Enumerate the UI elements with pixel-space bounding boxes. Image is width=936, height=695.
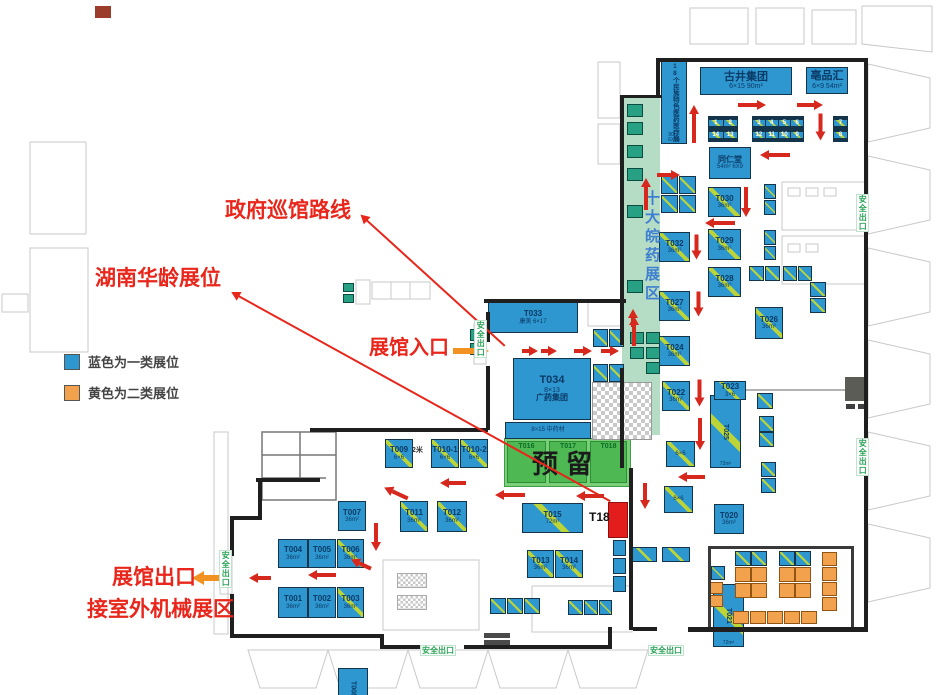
booth-T014: T01436m² [555,550,583,578]
arrow-shaft [744,187,748,208]
booth-size: 36m² [286,604,300,610]
legend-yellow-label: 黄色为二类展位 [88,383,179,402]
booth-T011: T01136m² [400,501,428,532]
booth-T010-1: T010-16×6 [431,439,459,468]
booth-id: 同仁堂 [718,156,742,164]
hualing-annotation: 湖南华龄展位 [95,262,221,292]
booth [662,547,690,562]
booth [761,462,776,477]
booth-id: T028 [715,275,733,283]
booth [613,540,626,556]
booth [343,283,354,292]
booth-size: 36m² [668,307,682,313]
booth-id: 亳品汇 [811,71,844,83]
booth-id: T006 [341,546,359,554]
booth-T010-2: T010-26×6 [460,439,488,468]
booth [764,246,776,260]
booth-size: 6×6 [469,455,479,461]
booth [632,547,657,562]
booth [627,104,643,117]
booth [679,195,696,213]
booth-id: T023 [721,383,739,391]
booth-T034: T0348×13广药集团 [513,358,591,420]
wall [633,627,657,631]
booth [568,600,583,615]
booth [764,230,776,245]
booth-id: T026 [760,316,778,324]
booth-size: 36m² [286,555,300,561]
booth-cell: 13 [724,132,738,138]
booth [646,362,660,374]
booth [810,298,826,313]
booth [661,195,678,213]
booth [507,598,523,614]
booth [490,598,506,614]
booth-id: T001 [284,595,302,603]
arrow-shaft [769,153,790,157]
outdoor-annotation: 接室外机械展区 [87,593,234,623]
route-arrow [601,344,619,358]
booth-T029: T02936m² [708,229,741,260]
route-arrow [678,470,705,484]
booth-T028: T02836m² [708,267,741,297]
arrow-shaft [522,349,529,353]
exhibition-floor-plan: 十大皖药展区 预留 蓝色为一类展位 黄色为二类展位 政府巡馆路线 湖南华龄展位 … [0,0,936,695]
arrow-shaft [657,173,671,177]
safety-exit-label: 安全出口 [219,550,232,588]
booth-cell: 6 [791,120,803,126]
category2-room-outline [708,546,854,632]
booth-T030: T03036m² [708,187,741,217]
booth-id: T009 [390,446,408,454]
booth-cell: 1 [709,120,723,126]
booth [749,266,764,281]
exit-annotation: 展馆出口 [112,561,196,591]
wall [656,58,866,62]
booth-size: 36m² [718,283,732,289]
booth-size: 36m² [668,352,682,358]
route-arrow [541,344,557,358]
booth [343,294,354,303]
booth-size: 36m² [718,203,732,209]
booth: 34561211109 [752,116,804,142]
arrow-shaft [317,573,336,577]
arrow-shaft [601,349,610,353]
booth-T023: T0233×6 [714,381,746,400]
wall [464,645,610,649]
booth [627,122,643,135]
route-arrow [369,523,383,551]
booth-id: T024 [665,344,683,352]
booth-company: 广药集团 [536,394,568,402]
route-arrow [576,489,604,503]
route-annotation: 政府巡馆路线 [225,194,351,224]
booth-size: 36m² [562,565,576,571]
route-arrow [687,105,701,143]
arrow-shaft [818,114,822,132]
booth-size: 8×15 中药材 [531,427,564,433]
route-arrow [739,187,753,217]
wall [310,428,488,432]
arrow-shaft [632,325,636,346]
booth [613,576,626,592]
aisle-width-note: 2米 [412,445,423,455]
booth [584,600,598,615]
booth [761,478,776,493]
hatched-desk [397,595,427,610]
booth [757,393,773,409]
route-arrow [813,114,827,141]
booth-cell: 11 [766,132,778,138]
booth-id: T007 [343,509,361,517]
booth-id: T022 [667,389,685,397]
route-arrow [308,568,336,582]
route-arrow [639,178,653,210]
booth-id: T010-2 [461,446,486,454]
booth-size: 72m² [546,519,560,525]
booth-size: 36m² [762,324,776,330]
booth-18个民族特色医药医疗展: 18个民族特色医药医疗展90m² 6X15 [661,61,687,144]
booth-id: T013 [531,557,549,565]
booth-cell: 5 [779,120,791,126]
booth-T008: T00836m² [338,668,368,695]
booth-id: T010-1 [432,446,457,454]
arrow-shaft [585,494,604,498]
booth-T002: T00236m² [308,587,336,618]
booth-id: T029 [715,237,733,245]
booth-size: 3×6 [725,392,735,398]
booth [798,266,812,281]
arrow-shaft [258,576,271,580]
legend: 蓝色为一类展位 黄色为二类展位 [64,352,179,414]
arrow-shaft [631,318,635,327]
arrow-shaft [541,349,548,353]
booth-T022: T02236m² [662,381,690,411]
booth [810,282,826,297]
booth-T012: T01236m² [437,501,467,532]
booth-id: T002 [313,595,331,603]
booth [759,416,774,432]
booth-cell: 9 [791,132,803,138]
booth-id: T005 [313,546,331,554]
structure-block [95,6,111,18]
booth [764,200,776,215]
booth-id: T18 [589,511,610,524]
booth-id: 古井集团 [724,72,768,84]
booth-T027: T02736m² [659,291,690,321]
arrow-shaft [358,561,371,570]
booth-T007: T00736m² [338,501,366,531]
booth: 121413 [708,116,738,142]
yellow-legend-swatch [64,385,80,401]
booth-cell: 2 [724,120,738,126]
arrow-shaft [697,380,701,398]
booth-size: 36m² [345,517,359,523]
booth-id: T025 [722,424,729,440]
booth-古井集团: 古井集团6×15 90m² [700,67,792,95]
booth-id: T020 [720,512,738,520]
route-arrow [657,168,680,182]
arrow-shaft [738,103,757,107]
booth [679,176,696,194]
legend-row-blue: 蓝色为一类展位 [64,352,179,371]
booth-T001: T00136m² [278,587,308,618]
arrow-shaft [698,418,702,441]
booth-size: 6×15 90m² [729,83,763,90]
booth-id: T033 [524,310,542,318]
booth-size: 6×6 [675,451,685,457]
booth-id: T012 [443,509,461,517]
booth-size: 54m² 6X9 [717,164,743,170]
booth-size: 36m² [315,604,329,610]
booth-size: 36m² [315,555,329,561]
booth: 78 [833,116,848,142]
booth-size: 36m² [534,565,548,571]
booth-cell: 4 [766,120,778,126]
arrow-shaft [694,235,698,251]
route-arrow [692,380,706,407]
booth-T033: T033康美 6×17 [488,302,578,333]
structure-block [846,404,855,409]
booth [764,184,776,199]
wall [656,58,660,98]
wall [486,366,490,430]
booth-id: T008 [349,681,356,695]
booth-T020: T02036m² [714,504,744,534]
booth-id: T003 [341,595,359,603]
booth-cell: 8 [834,132,847,138]
arrow-shaft [574,349,583,353]
route-arrow [691,292,705,317]
wall [230,634,384,638]
route-arrow [495,488,525,502]
booth-T004: T00436m² [278,539,308,568]
arrow-shaft [449,481,466,485]
arrow-shaft [643,483,647,500]
route-arrow [440,476,466,490]
arrow-shaft [692,114,696,143]
booth-id: T034 [539,375,564,387]
booth-T18: T18 [608,502,628,538]
booth-size: 36m² [669,397,683,403]
route-arrow [797,98,823,112]
booth-id: T027 [665,299,683,307]
booth-size: 72m² [714,641,743,646]
arrow-shaft [714,221,735,225]
booth: 6×6 [664,486,693,513]
route-arrow [689,235,703,260]
booth-size: 6×6 [440,455,450,461]
arrow-shaft [687,475,705,479]
route-arrow [249,571,271,585]
booth-size: 6×6 [673,496,683,502]
arrow-shaft [644,187,648,210]
booth: 6×6 [666,441,695,467]
route-arrow [638,483,652,509]
booth-size: 36m² [668,248,682,254]
booth [593,364,608,382]
booth-id: T014 [560,557,578,565]
blue-legend-swatch [64,354,80,370]
reserved-label: 预留 [506,444,626,480]
booth-size: 36m² [718,246,732,252]
booth-size: 6×9 54m² [812,83,842,90]
booth [783,266,797,281]
booth-size: 36m² [722,520,736,526]
wall [258,478,262,520]
legend-blue-label: 蓝色为一类展位 [88,352,179,371]
arrow-shaft [374,523,378,542]
safety-exit-label: 安全出口 [856,438,869,476]
booth-T015: T01572m² [522,503,583,533]
wall [864,58,868,630]
booth-size: 6×6 [394,455,404,461]
wall [620,95,624,345]
booth-cell: 12 [753,132,765,138]
booth-size: 36m² [344,604,358,610]
booth-T013: T01336m² [527,550,554,578]
booth-T003: T00336m² [337,587,364,618]
wall [256,478,320,482]
booth-T009: T0096×6 [385,439,413,468]
arrow-shaft [696,292,700,308]
route-arrow [760,148,790,162]
booth [613,558,626,574]
booth-T005: T00536m² [308,539,336,568]
arrow-shaft [504,493,525,497]
booth-size: 36m² [407,518,421,524]
route-arrow [626,309,640,327]
booth-T024: T02436m² [659,336,690,366]
hatched-desk [397,573,427,588]
route-arrow [693,418,707,450]
booth-T032: T03236m² [659,232,690,262]
booth [599,600,612,615]
safety-exit-label: 安全出口 [474,320,487,358]
booth-id: T004 [284,546,302,554]
booth-size: 36m² [445,518,459,524]
booth-id: T015 [543,511,561,519]
booth-cell: 3 [753,120,765,126]
safety-exit-label: 安全出口 [420,645,456,656]
booth-size: 90m² 6X15 [662,133,686,144]
booth-亳品汇: 亳品汇6×9 54m² [806,67,848,94]
structure-block [484,633,510,638]
booth-cell: 10 [779,132,791,138]
wall [484,299,626,303]
entrance-annotation: 展馆入口 [369,331,449,360]
booth-id: 18个民族特色医药医疗展 [671,63,678,142]
booth: 8×15 中药材 [505,422,591,439]
booth-cell: 7 [834,120,847,126]
wall [232,516,260,520]
arrow-shaft [392,489,409,500]
booth-size: 康美 6×17 [519,319,546,325]
booth-cell: 14 [709,132,723,138]
booth [759,432,774,447]
safety-exit-label: 安全出口 [856,194,869,232]
booth-id: T011 [405,509,423,517]
arrow-shaft [797,103,814,107]
booth-T026: T02636m² [755,307,783,339]
route-arrow [738,98,766,112]
booth-size: 72m² [711,462,740,467]
booth-同仁堂: 同仁堂54m² 6X9 [709,147,751,179]
safety-exit-label: 安全出口 [648,645,684,656]
route-arrow [574,344,592,358]
booth-T025: T02572m² [710,395,741,468]
route-arrow [522,344,538,358]
booth [524,598,540,614]
legend-row-yellow: 黄色为二类展位 [64,383,179,402]
wall [688,627,868,632]
wall [629,468,633,630]
route-arrow [705,216,735,230]
booth [765,266,780,281]
booth-id: T032 [665,240,683,248]
booth-id: T030 [715,195,733,203]
